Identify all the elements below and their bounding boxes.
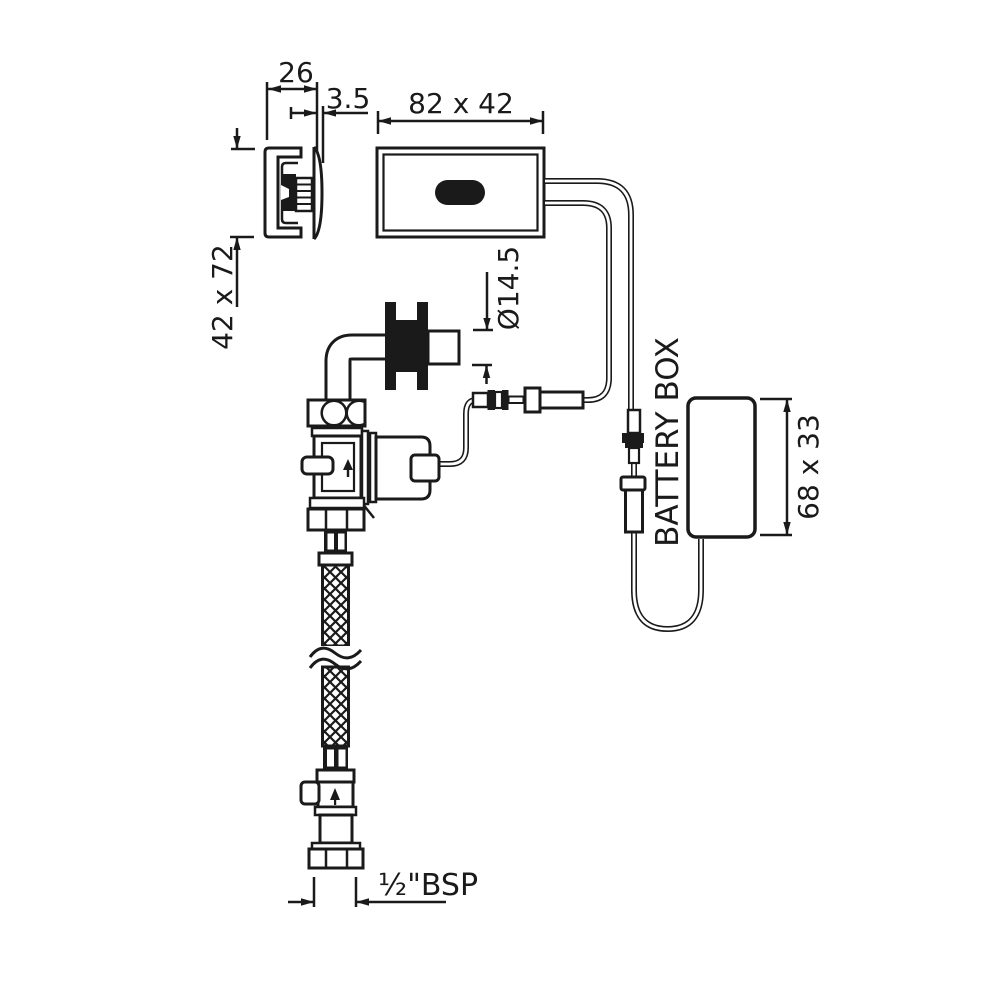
inline-connector-stub bbox=[628, 410, 640, 433]
flush-valve-body bbox=[302, 400, 439, 530]
braided-hose-assembly bbox=[301, 530, 364, 868]
wire-sensor-to-solenoid bbox=[545, 203, 609, 400]
dimension-wall-box: 42 x 72 bbox=[206, 128, 255, 350]
technical-drawing-page: 26 3.5 82 x 42 42 x 72 Ø14.5 bbox=[0, 0, 1000, 1000]
infrared-sensor-window bbox=[435, 180, 485, 205]
flush-valve-diagram: 26 3.5 82 x 42 42 x 72 Ø14.5 bbox=[0, 0, 1000, 1000]
battery-clip-cap bbox=[621, 477, 645, 490]
dim-label-bsp: ½"BSP bbox=[378, 868, 478, 903]
threaded-stud bbox=[296, 178, 312, 211]
dim-label-26: 26 bbox=[278, 56, 314, 89]
wire-sensor-to-battery bbox=[545, 181, 631, 412]
dim-label-82x42: 82 x 42 bbox=[408, 87, 514, 120]
battery-box bbox=[688, 398, 755, 537]
inline-connector-band bbox=[622, 433, 644, 443]
plug-pin bbox=[509, 397, 524, 404]
valve-side-clip bbox=[302, 457, 333, 474]
solenoid-pigtail-wire bbox=[437, 400, 476, 464]
battery-clip-body bbox=[626, 490, 643, 532]
sensor-plate-side-view bbox=[265, 147, 322, 239]
actuator-terminal bbox=[411, 455, 439, 481]
dim-label-42x72: 42 x 72 bbox=[206, 244, 239, 350]
dim-label-d14-5: Ø14.5 bbox=[492, 246, 525, 330]
dimension-tube-diameter: Ø14.5 bbox=[472, 246, 525, 384]
dim-label-3-5: 3.5 bbox=[326, 82, 371, 115]
solenoid-assembly bbox=[338, 302, 459, 402]
solenoid-plug-connector bbox=[473, 388, 583, 412]
dimension-inlet-thread: ½"BSP bbox=[288, 868, 478, 907]
inlet-hex-nut bbox=[309, 849, 363, 868]
outlet-hex-nut bbox=[308, 509, 364, 530]
socket-cap bbox=[525, 388, 540, 412]
armature-tube bbox=[428, 331, 459, 364]
dimension-battery-box: 68 x 33 bbox=[760, 399, 825, 535]
battery-box-label: BATTERY BOX bbox=[650, 337, 686, 547]
dimension-bracket-depth: 26 bbox=[267, 56, 317, 152]
sensor-plate-front-view bbox=[377, 148, 544, 237]
elbow-supply-tube bbox=[338, 347, 387, 402]
socket-body bbox=[540, 392, 583, 408]
union-nut bbox=[308, 400, 365, 426]
faceplate-edge-profile bbox=[314, 147, 322, 239]
braided-hose-lower bbox=[323, 667, 349, 746]
braided-hose-upper bbox=[323, 565, 349, 646]
solenoid-coil bbox=[393, 320, 419, 372]
dim-label-68x33: 68 x 33 bbox=[792, 414, 825, 520]
check-valve-tab bbox=[301, 782, 319, 804]
dimension-sensor-plate: 82 x 42 bbox=[378, 87, 543, 134]
battery-circuit bbox=[621, 398, 755, 537]
dimension-faceplate-thickness: 3.5 bbox=[291, 82, 370, 163]
